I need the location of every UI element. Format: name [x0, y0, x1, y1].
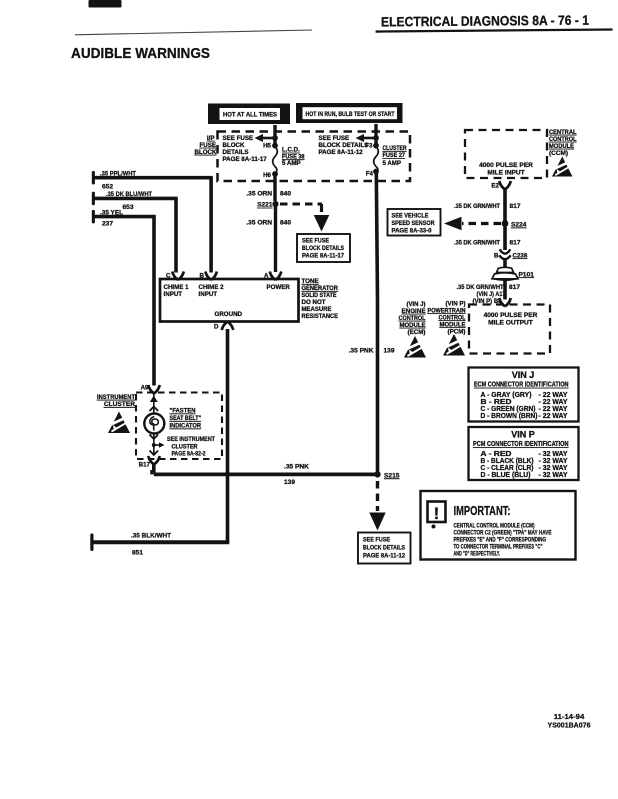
svg-text:D - BROWN (BRN): D - BROWN (BRN) — [481, 413, 538, 420]
svg-text:VIN J: VIN J — [512, 370, 535, 380]
svg-text:BLOCK: BLOCK — [223, 142, 246, 149]
svg-text:840: 840 — [280, 191, 291, 198]
svg-text:SEE VEHICLE: SEE VEHICLE — [392, 213, 429, 220]
svg-text:TO CONNECTOR TERMINAL PREFIXES: TO CONNECTOR TERMINAL PREFIXES "C" — [454, 545, 543, 551]
svg-text:D: D — [214, 324, 219, 331]
svg-text:(VIN J): (VIN J) — [407, 301, 426, 308]
svg-text:DETAILS: DETAILS — [223, 149, 249, 156]
svg-text:F4: F4 — [366, 170, 374, 177]
svg-text:INPUT: INPUT — [164, 291, 183, 298]
svg-text:HOT AT ALL TIMES: HOT AT ALL TIMES — [223, 112, 278, 119]
svg-text:CLUSTER: CLUSTER — [104, 401, 135, 408]
svg-text:HOT IN RUN, BULB TEST OR START: HOT IN RUN, BULB TEST OR START — [306, 111, 395, 118]
svg-text:BLOCK DETAILS: BLOCK DETAILS — [302, 245, 344, 252]
svg-text:MILE INPUT: MILE INPUT — [487, 170, 524, 177]
svg-text:- 32 WAY: - 32 WAY — [539, 472, 568, 479]
svg-text:C - CLEAR (CLR): C - CLEAR (CLR) — [481, 465, 534, 472]
svg-text:PAGE 8A-11-17: PAGE 8A-11-17 — [223, 156, 268, 163]
svg-text:CONTROL: CONTROL — [439, 314, 466, 321]
svg-text:CLUSTER: CLUSTER — [383, 145, 407, 152]
svg-text:CHIME 2: CHIME 2 — [199, 284, 225, 291]
svg-text:817: 817 — [510, 203, 521, 210]
svg-text:I/P: I/P — [207, 135, 215, 142]
svg-text:INSTRUMENT: INSTRUMENT — [97, 394, 135, 401]
svg-text:840: 840 — [280, 220, 291, 227]
svg-text:CHIME 1: CHIME 1 — [164, 284, 190, 291]
svg-text:- 22 WAY: - 22 WAY — [539, 413, 568, 420]
svg-text:!: ! — [434, 504, 440, 523]
svg-text:IMPORTANT:: IMPORTANT: — [454, 504, 511, 518]
svg-text:CONNECTOR C2 (GREEN) "TPA" MAY: CONNECTOR C2 (GREEN) "TPA" MAY HAVE — [454, 531, 552, 537]
svg-text:.35 DK GRN/WHT: .35 DK GRN/WHT — [457, 284, 504, 291]
svg-text:4000 PULSE PER: 4000 PULSE PER — [484, 312, 538, 319]
svg-text:P101: P101 — [519, 271, 535, 278]
svg-text:PCM CONNECTOR IDENTIFICATION: PCM CONNECTOR IDENTIFICATION — [473, 441, 569, 448]
svg-text:TONE: TONE — [302, 278, 319, 285]
svg-text:- 22 WAY: - 22 WAY — [539, 406, 568, 413]
svg-text:BLOCK DETAILS: BLOCK DETAILS — [319, 142, 369, 149]
svg-text:851: 851 — [132, 550, 143, 557]
svg-text:S215: S215 — [384, 472, 400, 479]
svg-text:POWERTRAIN: POWERTRAIN — [428, 307, 466, 314]
svg-text:RESISTANCE: RESISTANCE — [302, 313, 339, 320]
svg-text:- 22 WAY: - 22 WAY — [539, 399, 568, 406]
svg-text:237: 237 — [102, 221, 113, 228]
svg-text:SEE FUSE: SEE FUSE — [319, 135, 350, 142]
svg-text:VIN P: VIN P — [511, 430, 535, 440]
svg-text:(PCM): (PCM) — [448, 328, 466, 335]
svg-text:MEASURE: MEASURE — [302, 306, 332, 313]
svg-text:5 AMP: 5 AMP — [383, 160, 402, 167]
svg-text:F3: F3 — [365, 143, 373, 150]
svg-text:CONTROL: CONTROL — [399, 315, 426, 322]
svg-text:- 32 WAY: - 32 WAY — [539, 451, 568, 458]
svg-text:.35 ORN: .35 ORN — [246, 191, 272, 198]
svg-text:652: 652 — [102, 183, 113, 190]
svg-text:(VIN J) A17: (VIN J) A17 — [477, 291, 506, 298]
svg-text:SEE FUSE: SEE FUSE — [363, 537, 390, 544]
svg-text:MILE OUTPUT: MILE OUTPUT — [488, 320, 533, 327]
svg-text:B - RED: B - RED — [481, 399, 512, 406]
svg-text:817: 817 — [510, 240, 521, 247]
svg-text:CENTRAL CONTROL MODULE (CCM): CENTRAL CONTROL MODULE (CCM) — [454, 524, 535, 530]
svg-text:PAGE 8A-82-2: PAGE 8A-82-2 — [172, 451, 206, 458]
svg-text:ECM CONNECTOR IDENTIFICATION: ECM CONNECTOR IDENTIFICATION — [474, 382, 569, 389]
svg-text:DO NOT: DO NOT — [302, 299, 326, 306]
svg-text:SPEED SENSOR: SPEED SENSOR — [392, 220, 435, 227]
svg-text:PAGE 8A-33-0: PAGE 8A-33-0 — [392, 228, 433, 235]
svg-text:GROUND: GROUND — [215, 311, 243, 318]
svg-text:.35 ORN: .35 ORN — [246, 220, 272, 227]
svg-text:653: 653 — [123, 204, 134, 211]
svg-text:INPUT: INPUT — [199, 291, 218, 298]
svg-text:(CCM): (CCM) — [549, 150, 568, 157]
svg-text:.35 DK GRN/WHT: .35 DK GRN/WHT — [454, 203, 500, 210]
svg-text:S224: S224 — [511, 222, 527, 229]
svg-text:A - GRAY (GRY): A - GRAY (GRY) — [481, 392, 532, 399]
svg-text:- 22 WAY: - 22 WAY — [539, 392, 568, 399]
svg-text:A - RED: A - RED — [481, 451, 512, 458]
svg-text:PAGE 8A-11-12: PAGE 8A-11-12 — [363, 553, 406, 560]
svg-text:BLOCK DETAILS: BLOCK DETAILS — [363, 545, 405, 552]
svg-text:MODULE: MODULE — [549, 143, 574, 150]
svg-text:FUSE: FUSE — [199, 142, 216, 149]
svg-text:.35 PNK: .35 PNK — [349, 347, 374, 354]
svg-text:B: B — [200, 273, 205, 280]
svg-text:5 AMP: 5 AMP — [282, 160, 301, 167]
svg-text:BLOCK: BLOCK — [195, 149, 218, 156]
svg-text:.35 PNK: .35 PNK — [284, 463, 309, 470]
svg-text:S221: S221 — [257, 202, 273, 209]
svg-text:139: 139 — [384, 347, 395, 354]
svg-text:B - BLACK (BLK): B - BLACK (BLK) — [481, 458, 534, 465]
svg-text:4000 PULSE PER: 4000 PULSE PER — [479, 162, 533, 169]
svg-text:CONTROL: CONTROL — [549, 136, 577, 143]
svg-text:C - GREEN (GRN): C - GREEN (GRN) — [481, 406, 536, 413]
svg-text:(ECM): (ECM) — [408, 329, 426, 336]
svg-text:AUDIBLE WARNINGS: AUDIBLE WARNINGS — [71, 46, 210, 62]
svg-text:PAGE 8A-11-17: PAGE 8A-11-17 — [302, 253, 345, 260]
svg-text:CENTRAL: CENTRAL — [549, 129, 577, 136]
svg-text:POWER: POWER — [267, 284, 291, 291]
svg-text:SEE INSTRUMENT: SEE INSTRUMENT — [167, 436, 215, 443]
svg-text:(VIN P): (VIN P) — [446, 300, 466, 307]
svg-text:- 32 WAY: - 32 WAY — [539, 465, 568, 472]
svg-text:GENERATOR: GENERATOR — [302, 285, 339, 292]
svg-text:- 32 WAY: - 32 WAY — [539, 458, 568, 465]
svg-text:.35 DK BLU/WHT: .35 DK BLU/WHT — [106, 191, 152, 198]
svg-text:FUSE 27: FUSE 27 — [383, 152, 406, 159]
svg-text:139: 139 — [284, 479, 295, 486]
svg-text:SEE FUSE: SEE FUSE — [223, 135, 254, 142]
svg-text:SEE FUSE: SEE FUSE — [302, 238, 329, 245]
svg-text:B17: B17 — [139, 462, 151, 469]
svg-text:B: B — [494, 252, 499, 259]
svg-text:.35 DK GRN/WHT: .35 DK GRN/WHT — [454, 240, 500, 247]
svg-text:817: 817 — [509, 284, 520, 291]
svg-text:MODULE: MODULE — [440, 321, 466, 328]
svg-text:A: A — [264, 273, 269, 280]
svg-text:.35 BLK/WHT: .35 BLK/WHT — [131, 533, 171, 540]
svg-text:SEAT BELT": SEAT BELT" — [170, 415, 202, 422]
svg-text:C: C — [166, 273, 171, 280]
svg-text:PREFIXES "E" AND "F" CORRESPON: PREFIXES "E" AND "F" CORRESPONDING — [454, 538, 547, 544]
svg-text:"FASTEN: "FASTEN — [170, 408, 197, 415]
svg-text:H6: H6 — [263, 172, 271, 179]
svg-text:D - BLUE (BLU): D - BLUE (BLU) — [481, 472, 531, 479]
svg-text:MODULE: MODULE — [400, 322, 426, 329]
svg-text:ENGINE: ENGINE — [402, 308, 426, 315]
svg-text:C238: C238 — [513, 252, 528, 259]
svg-text:.35 YEL: .35 YEL — [100, 209, 123, 216]
svg-text:PAGE 8A-11-12: PAGE 8A-11-12 — [319, 149, 364, 156]
svg-text:.35 PPL/WHT: .35 PPL/WHT — [100, 170, 136, 177]
svg-text:AND "D" RESPECTIVELY.: AND "D" RESPECTIVELY. — [454, 552, 501, 558]
svg-text:ELECTRICAL DIAGNOSIS 8A - 76 -: ELECTRICAL DIAGNOSIS 8A - 76 - 1 — [381, 13, 590, 30]
svg-text:INDICATOR: INDICATOR — [170, 423, 202, 430]
svg-text:YS001BA076: YS001BA076 — [548, 721, 591, 730]
svg-text:E2: E2 — [491, 183, 499, 190]
svg-text:H5: H5 — [263, 143, 271, 150]
svg-text:CLUSTER: CLUSTER — [172, 443, 198, 450]
svg-text:SOLID STATE: SOLID STATE — [302, 292, 337, 299]
